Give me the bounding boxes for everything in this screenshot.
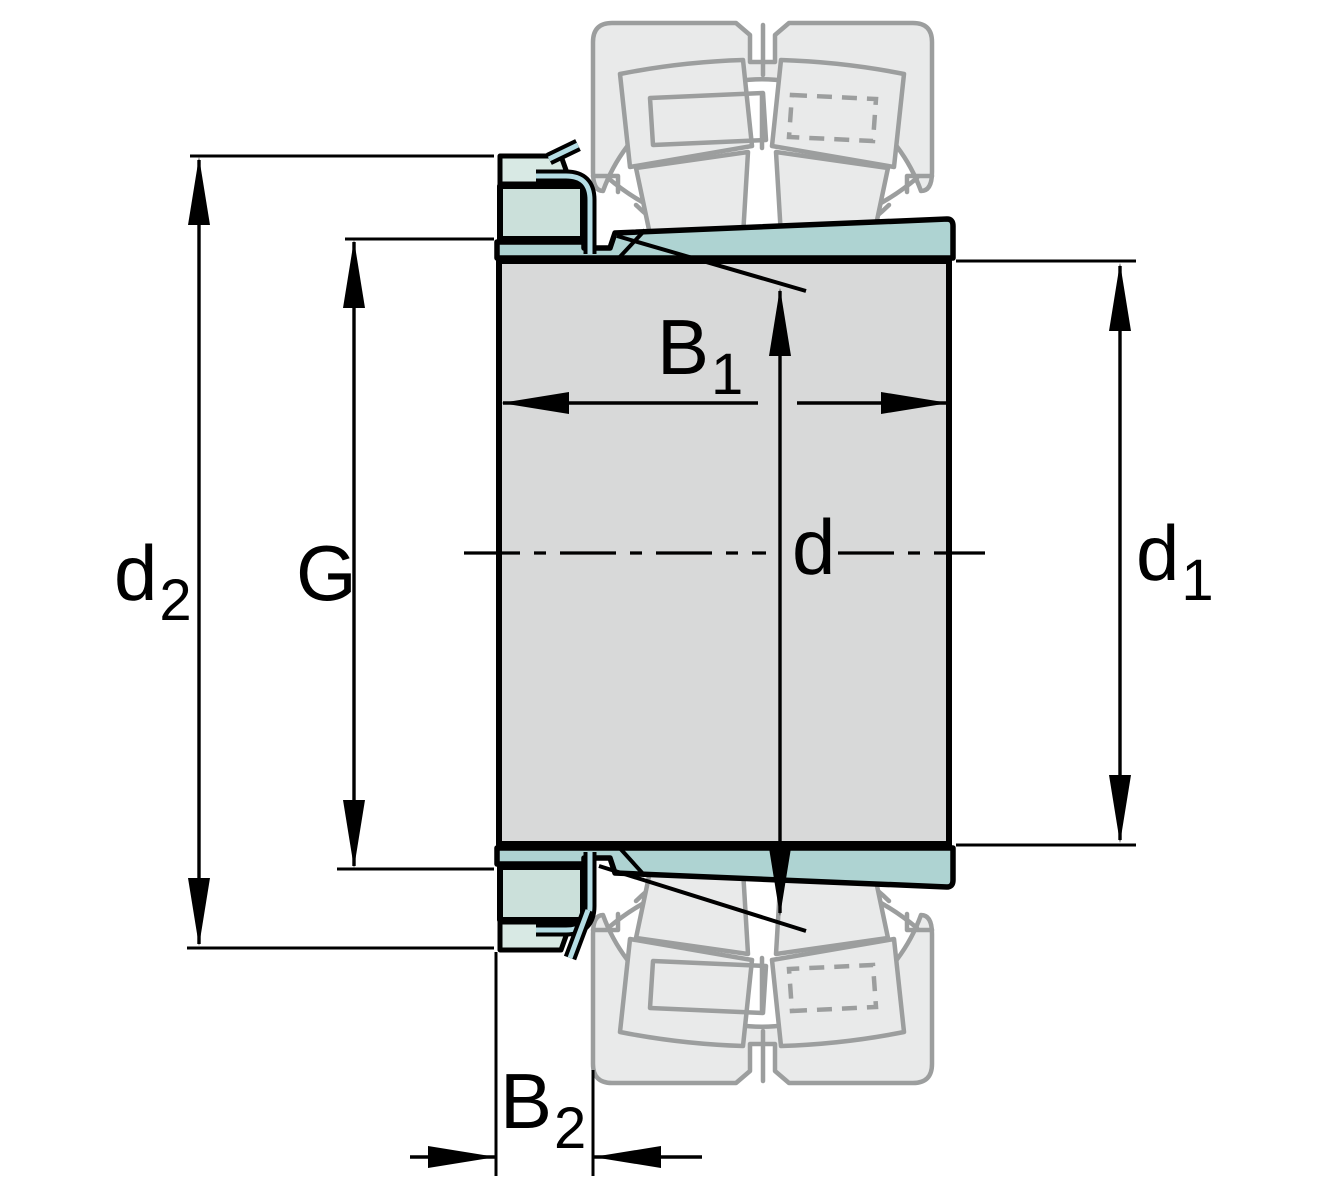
arrowhead-left [593, 1146, 661, 1168]
label-b2: B2 [500, 1057, 586, 1161]
arrowhead-up [1109, 263, 1131, 331]
nut-body-bottom [500, 867, 583, 920]
label-d2: d2 [114, 529, 192, 633]
nut-body-top [500, 186, 583, 239]
arrowhead-down [1109, 775, 1131, 843]
label-d: d [792, 503, 835, 591]
arrowhead-down [188, 878, 210, 946]
arrowhead-up [343, 240, 365, 308]
arrowhead-down [343, 800, 365, 868]
label-g: G [296, 529, 357, 617]
technical-drawing: d2 G B1 d d1 B2 [0, 0, 1330, 1200]
label-d1: d1 [1136, 509, 1214, 613]
arrowhead-right [428, 1146, 496, 1168]
arrowhead-up [188, 157, 210, 225]
roller-left [620, 60, 752, 167]
